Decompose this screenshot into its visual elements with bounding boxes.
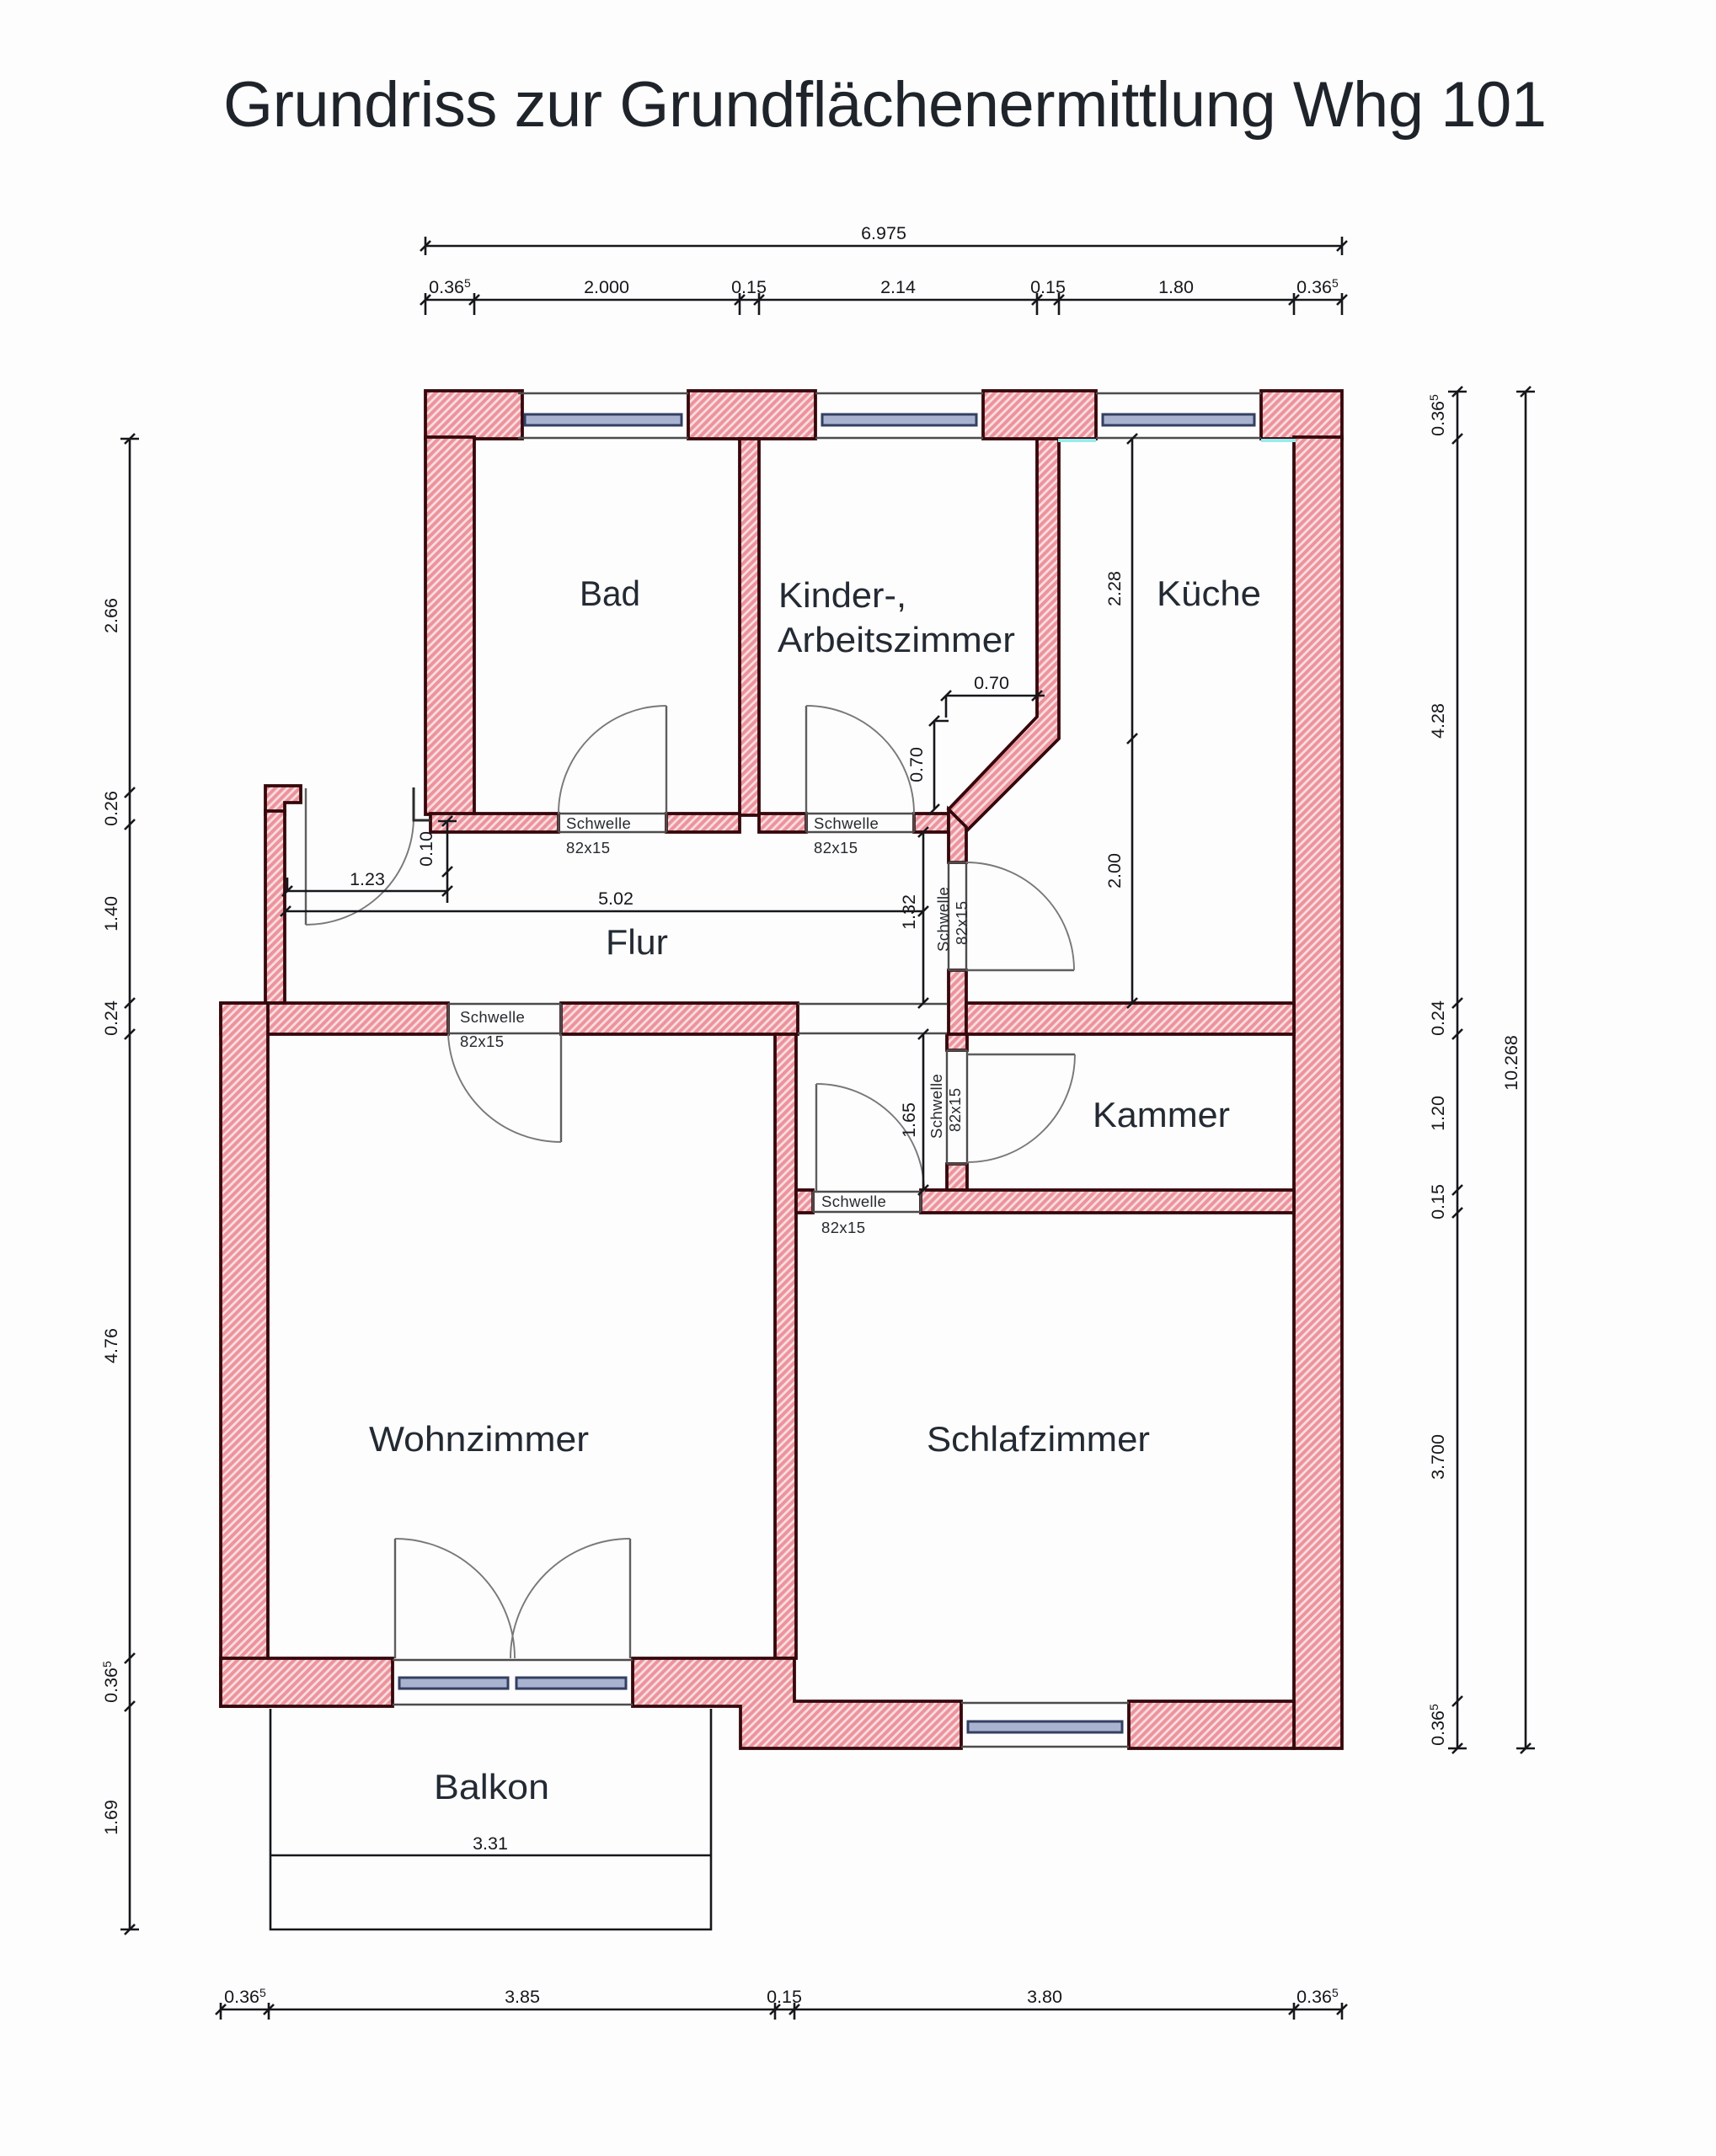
svg-text:1.23: 1.23	[350, 869, 385, 889]
svg-text:Balkon: Balkon	[434, 1767, 549, 1806]
svg-text:2.00: 2.00	[1104, 853, 1125, 889]
svg-text:82x15: 82x15	[566, 839, 610, 857]
svg-text:Schwelle: Schwelle	[814, 814, 879, 832]
svg-text:1.80: 1.80	[1158, 277, 1194, 297]
svg-text:3.700: 3.700	[1428, 1434, 1448, 1480]
svg-text:6.975: 6.975	[861, 223, 906, 243]
svg-text:2.28: 2.28	[1104, 571, 1125, 606]
svg-text:Bad: Bad	[580, 574, 640, 613]
svg-text:1.69: 1.69	[101, 1800, 121, 1835]
svg-text:Wohnzimmer: Wohnzimmer	[369, 1419, 589, 1459]
svg-text:Flur: Flur	[606, 922, 668, 962]
svg-text:3.31: 3.31	[473, 1833, 508, 1854]
svg-text:Schwelle: Schwelle	[927, 1074, 945, 1139]
svg-text:0.365: 0.365	[100, 1661, 121, 1703]
svg-text:Schwelle: Schwelle	[460, 1008, 525, 1026]
svg-text:0.365: 0.365	[224, 1986, 266, 2007]
svg-text:5.02: 5.02	[598, 889, 633, 909]
svg-text:Kammer: Kammer	[1093, 1095, 1230, 1134]
svg-text:82x15: 82x15	[821, 1219, 865, 1236]
svg-text:0.70: 0.70	[906, 747, 927, 782]
svg-text:0.70: 0.70	[974, 673, 1009, 693]
svg-text:Grundriss zur Grundflächenermi: Grundriss zur Grundflächenermittlung Whg…	[223, 69, 1547, 141]
svg-text:0.365: 0.365	[1427, 1704, 1448, 1746]
svg-text:0.15: 0.15	[1030, 277, 1066, 297]
svg-text:1.40: 1.40	[101, 896, 121, 931]
svg-text:4.76: 4.76	[101, 1328, 121, 1364]
svg-text:0.24: 0.24	[1428, 1001, 1448, 1036]
svg-text:0.24: 0.24	[101, 1001, 121, 1036]
svg-text:3.85: 3.85	[505, 1987, 540, 2007]
svg-text:0.365: 0.365	[1427, 394, 1448, 436]
svg-text:0.15: 0.15	[767, 1987, 802, 2007]
svg-text:Kinder-,: Kinder-,	[778, 575, 906, 615]
svg-text:4.28: 4.28	[1428, 703, 1448, 739]
svg-text:0.365: 0.365	[1296, 276, 1339, 297]
svg-text:Arbeitszimmer: Arbeitszimmer	[778, 620, 1015, 659]
svg-text:2.000: 2.000	[584, 277, 629, 297]
svg-text:2.14: 2.14	[880, 277, 916, 297]
svg-text:1.65: 1.65	[899, 1102, 919, 1138]
svg-text:0.10: 0.10	[416, 831, 436, 867]
svg-text:2.66: 2.66	[101, 598, 121, 633]
svg-text:0.365: 0.365	[1296, 1986, 1339, 2007]
svg-text:Schlafzimmer: Schlafzimmer	[927, 1419, 1150, 1459]
svg-text:Schwelle: Schwelle	[566, 814, 631, 832]
svg-text:0.365: 0.365	[429, 276, 471, 297]
svg-text:82x15: 82x15	[460, 1033, 504, 1050]
svg-text:82x15: 82x15	[946, 1088, 964, 1132]
svg-text:82x15: 82x15	[814, 839, 858, 857]
svg-text:82x15: 82x15	[953, 901, 970, 945]
svg-text:Schwelle: Schwelle	[821, 1193, 886, 1210]
svg-text:0.26: 0.26	[101, 791, 121, 826]
svg-text:0.15: 0.15	[731, 277, 767, 297]
svg-text:1.20: 1.20	[1428, 1096, 1448, 1131]
svg-text:Schwelle: Schwelle	[934, 887, 952, 952]
svg-text:0.15: 0.15	[1428, 1184, 1448, 1219]
svg-text:Küche: Küche	[1157, 574, 1261, 613]
svg-text:3.80: 3.80	[1027, 1987, 1062, 2007]
svg-text:1.32: 1.32	[899, 894, 919, 930]
svg-text:10.268: 10.268	[1501, 1035, 1521, 1091]
